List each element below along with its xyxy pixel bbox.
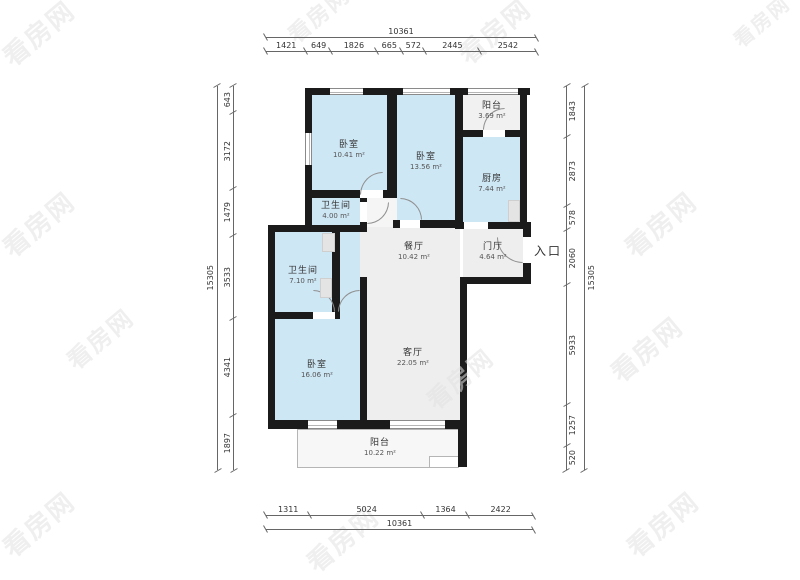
- floor-plan: 看房网 看房网 看房网 看房网 看房网 看房网 看房网 看房网 看房网 看房网 …: [0, 0, 800, 566]
- wall-bedroom1-bottom: [305, 190, 397, 198]
- dimension-bottom-segments: 1311502413642422: [266, 502, 533, 516]
- room-label-foyer: 门厅 4.64 m²: [479, 239, 506, 261]
- wall-left-lower: [268, 225, 275, 429]
- room-area: 7.10 m²: [288, 277, 318, 285]
- watermark: 看房网: [618, 482, 706, 564]
- room-area: 7.44 m²: [478, 185, 505, 193]
- dimension-segment: 15305: [204, 86, 218, 470]
- dimension-segment: 2422: [468, 505, 533, 516]
- window-bedroom2-top: [403, 88, 450, 95]
- room-label-balcony-top: 阳台 3.69 m²: [478, 98, 505, 120]
- room-area: 4.64 m²: [479, 253, 506, 261]
- dimension-segment: 1479: [222, 189, 234, 236]
- room-area: 22.05 m²: [397, 359, 429, 367]
- room-name: 卧室: [301, 357, 333, 370]
- dimension-segment: 1311: [266, 505, 310, 516]
- room-area: 3.69 m²: [478, 112, 505, 120]
- dimension-right-segments: 18432873578206059331257520: [566, 86, 578, 470]
- watermark: 看房网: [0, 0, 82, 74]
- dimension-segment: 572: [402, 41, 425, 52]
- room-area: 10.22 m²: [364, 449, 396, 457]
- room-area: 4.00 m²: [321, 212, 351, 220]
- room-name: 阳台: [478, 98, 505, 111]
- room-area: 10.42 m²: [398, 253, 430, 261]
- watermark: 看房网: [0, 182, 82, 264]
- dimension-segment: 1826: [331, 41, 377, 52]
- wall-balcony-right: [458, 420, 467, 467]
- room-label-bathroom-left: 卫生间 7.10 m²: [288, 263, 318, 285]
- door-gap-kitchen-foyer: [464, 222, 488, 229]
- dimension-left-segments: 64331721479353343411897: [222, 86, 234, 470]
- room-label-bedroom-1: 卧室 10.41 m²: [333, 137, 365, 159]
- dimension-right-overall: 15305: [584, 86, 598, 470]
- room-label-living: 客厅 22.05 m²: [397, 345, 429, 367]
- dimension-segment: 4341: [222, 319, 234, 416]
- watermark: 看房网: [726, 0, 795, 53]
- watermark: 看房网: [602, 307, 690, 389]
- bath-left-fixture-top: [322, 233, 335, 252]
- dimension-segment: 5933: [566, 285, 578, 404]
- dimension-segment: 3533: [222, 236, 234, 319]
- dimension-segment: 1897: [222, 416, 234, 470]
- room-name: 卫生间: [288, 263, 318, 276]
- dimension-segment: 665: [377, 41, 402, 52]
- door-gap-bath-small: [360, 202, 367, 222]
- room-area: 16.06 m²: [301, 371, 333, 379]
- bath-left-fixture-bottom: [320, 278, 332, 298]
- watermark: 看房网: [58, 299, 140, 376]
- dimension-segment: 2542: [480, 41, 536, 52]
- dimension-segment: 1257: [566, 405, 578, 446]
- room-name: 客厅: [397, 345, 429, 358]
- dimension-segment: 1364: [423, 505, 468, 516]
- room-name: 卫生间: [321, 198, 351, 211]
- dimension-segment: 1421: [266, 41, 306, 52]
- door-gap-entrance: [523, 237, 531, 263]
- wall-kitchen-right: [520, 88, 527, 229]
- room-label-balcony-bottom: 阳台 10.22 m²: [364, 435, 396, 457]
- room-name: 餐厅: [398, 239, 430, 252]
- room-area: 13.56 m²: [410, 163, 442, 171]
- room-label-bedroom-3: 卧室 16.06 m²: [301, 357, 333, 379]
- dimension-left-overall: 15305: [204, 86, 218, 470]
- room-name: 卧室: [333, 137, 365, 150]
- room-area: 10.41 m²: [333, 151, 365, 159]
- balcony-step: [429, 456, 459, 468]
- wall-foyer-bottom: [460, 277, 530, 284]
- kitchen-counter: [508, 200, 520, 222]
- room-label-dining: 餐厅 10.42 m²: [398, 239, 430, 261]
- dimension-segment: 2873: [566, 137, 578, 205]
- dimension-segment: 578: [566, 206, 578, 231]
- dimension-segment: 643: [222, 86, 234, 113]
- dimension-segment: 2060: [566, 230, 578, 285]
- door-gap-balcony-kitchen: [483, 130, 505, 137]
- dimension-top-segments: 1421649182666557224452542: [266, 38, 536, 52]
- room-label-kitchen: 厨房 7.44 m²: [478, 171, 505, 193]
- room-label-bathroom-small: 卫生间 4.00 m²: [321, 198, 351, 220]
- watermark: 看房网: [0, 482, 82, 564]
- room-name: 厨房: [478, 171, 505, 184]
- room-name: 卧室: [410, 149, 442, 162]
- wall-living-left: [360, 277, 367, 422]
- dimension-segment: 10361: [266, 27, 536, 38]
- dimension-segment: 520: [566, 446, 578, 470]
- dimension-segment: 3172: [222, 113, 234, 190]
- dimension-bottom-overall: 10361: [266, 516, 533, 530]
- dimension-segment: 5024: [310, 505, 422, 516]
- dimension-segment: 10361: [266, 519, 533, 530]
- door-gap-bedroom2: [400, 220, 420, 228]
- dimension-top-overall: 10361: [266, 24, 536, 38]
- window-balcony-top: [468, 88, 518, 95]
- slider-living-balcony: [390, 420, 445, 429]
- window-bedroom1-left: [305, 133, 312, 165]
- wall-bedroom-divider: [387, 88, 397, 198]
- room-name: 阳台: [364, 435, 396, 448]
- dimension-segment: 15305: [584, 86, 598, 470]
- window-bedroom1-top: [330, 88, 363, 95]
- dimension-segment: 649: [306, 41, 330, 52]
- room-label-bedroom-2: 卧室 13.56 m²: [410, 149, 442, 171]
- entrance-label: 入口: [534, 242, 562, 259]
- watermark: 看房网: [616, 182, 704, 264]
- wall-living-right: [460, 277, 467, 427]
- wall-step: [268, 225, 367, 232]
- slider-bedroom3-balcony: [308, 420, 337, 429]
- wall-bedroom2-right: [455, 88, 463, 229]
- door-gap-bath-left: [313, 312, 335, 319]
- dimension-segment: 2445: [425, 41, 480, 52]
- dimension-segment: 1843: [566, 86, 578, 137]
- room-name: 门厅: [479, 239, 506, 252]
